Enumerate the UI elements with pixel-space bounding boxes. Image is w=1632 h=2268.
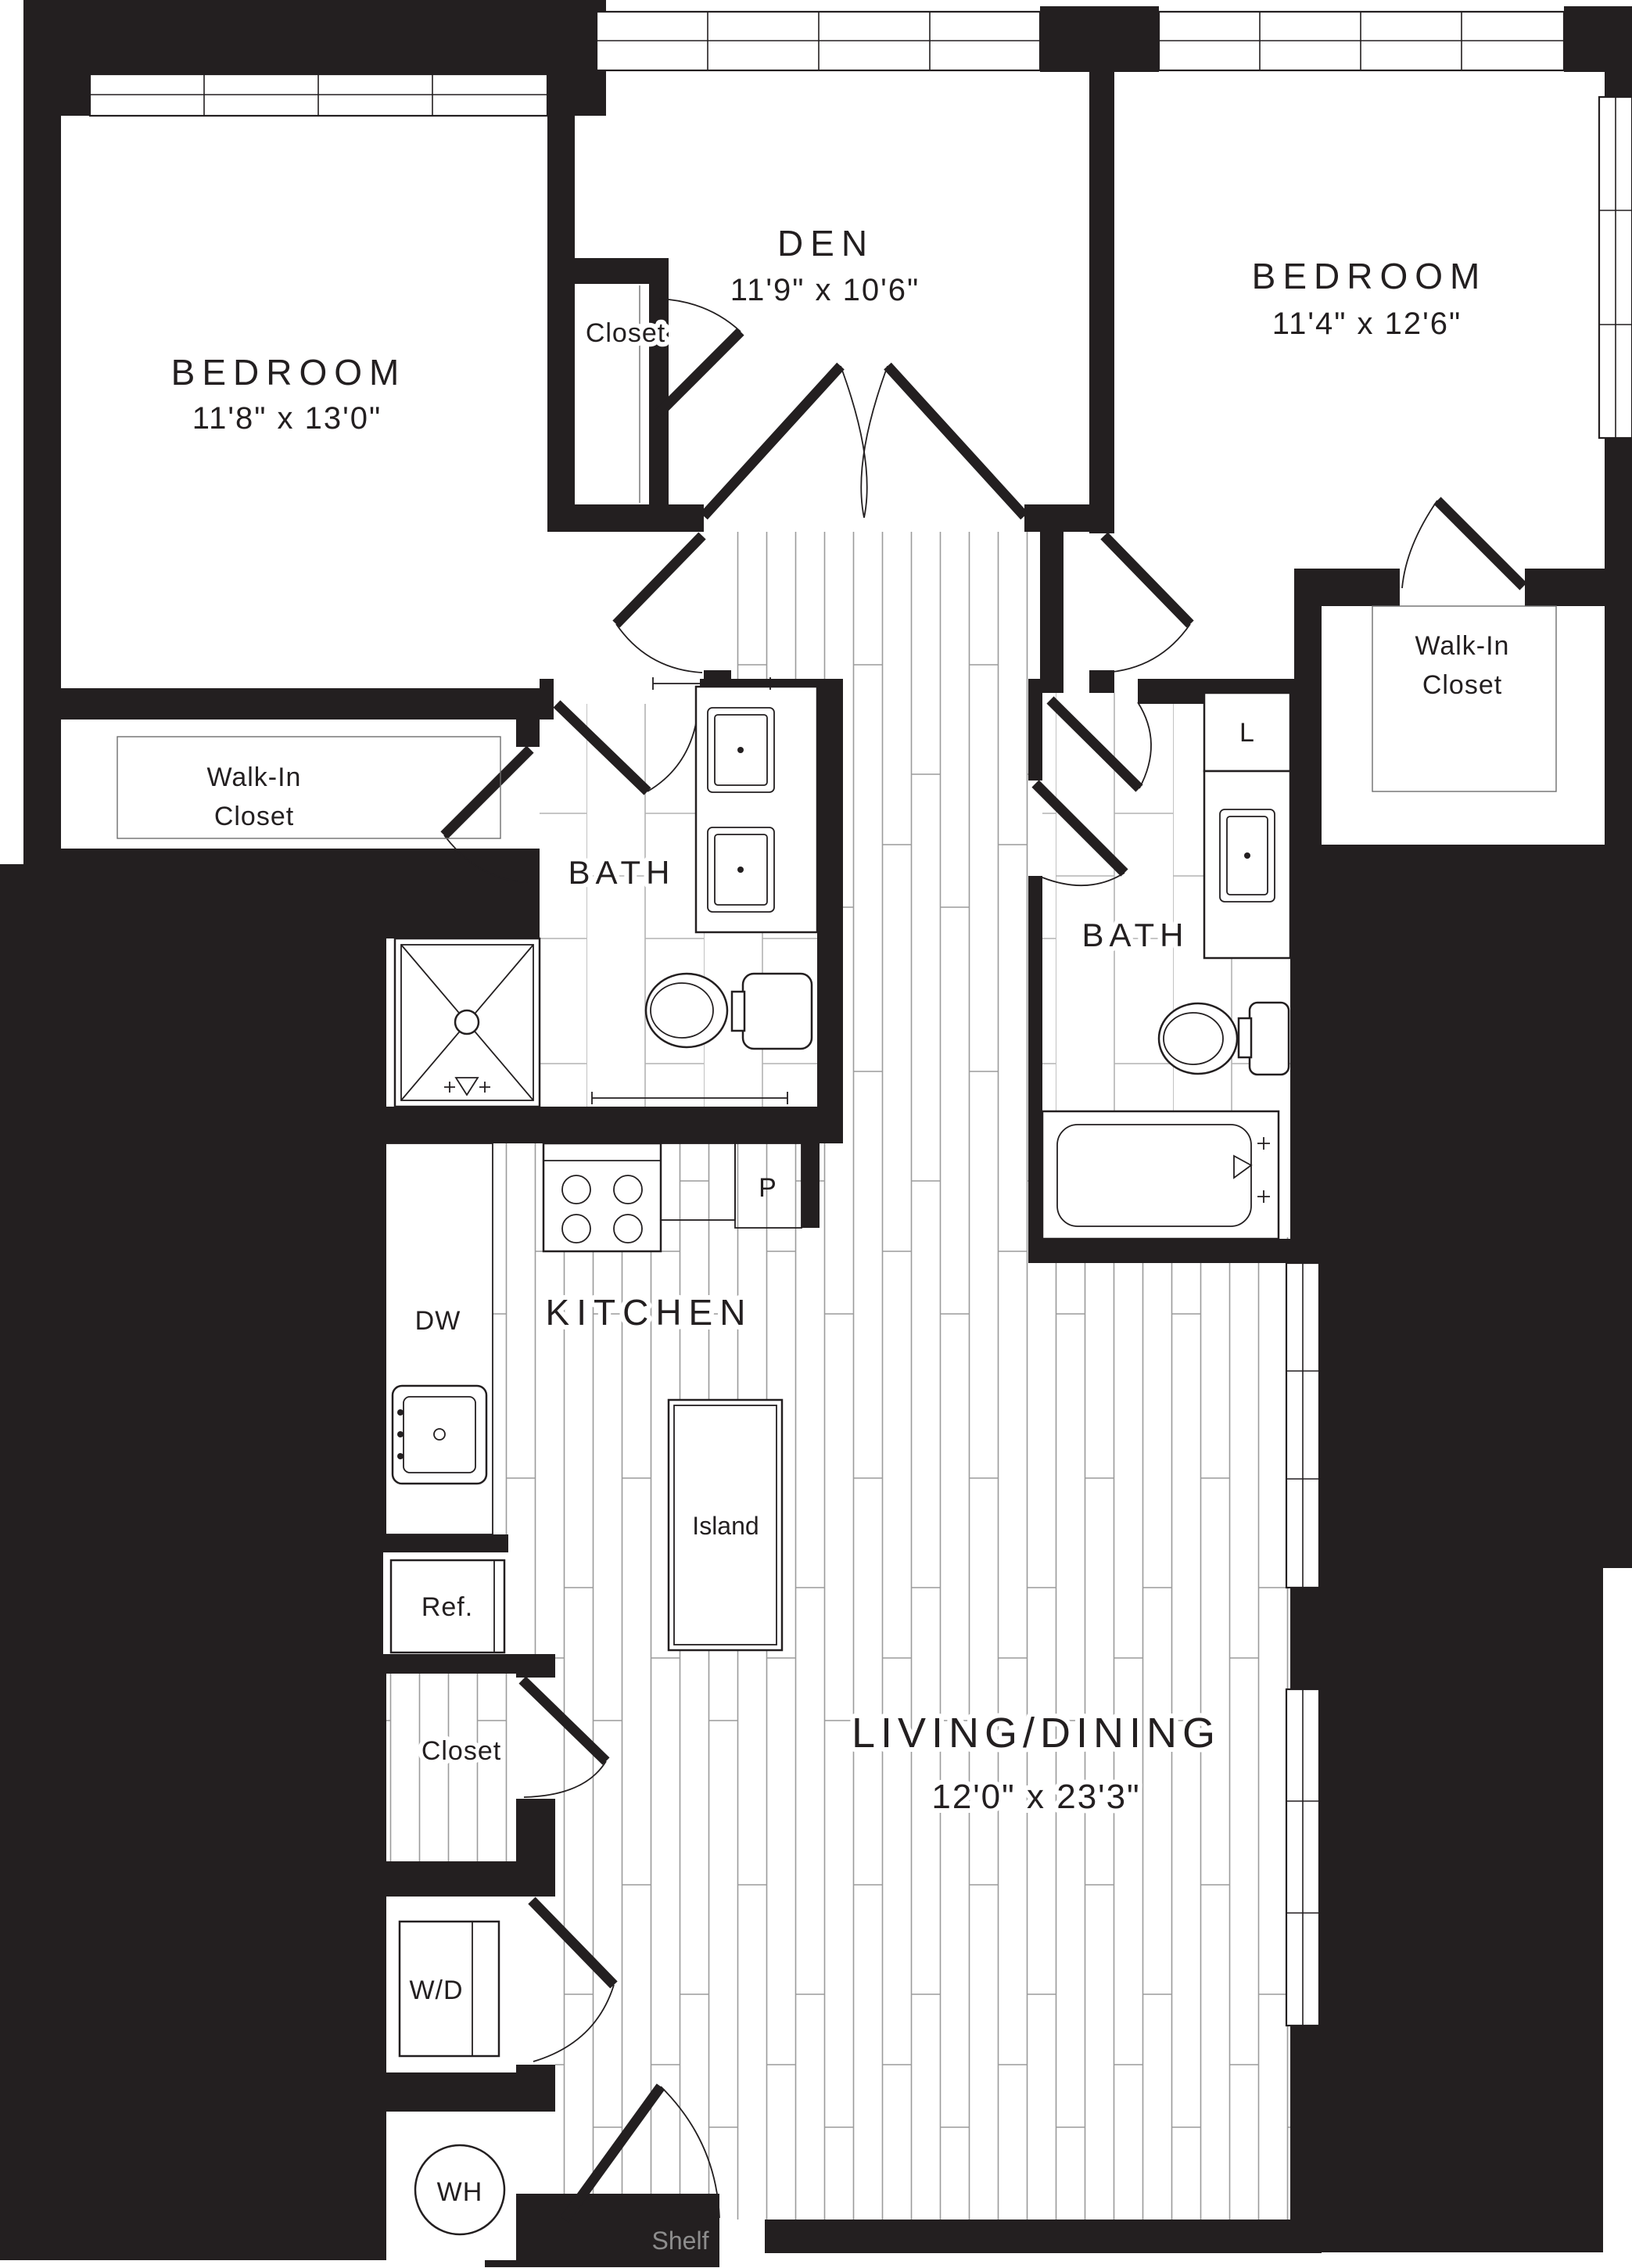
wall-walkin-right — [1605, 579, 1632, 845]
wall-den-top-left-stub — [575, 6, 597, 72]
wall-bed2-bottom-right — [1525, 569, 1632, 606]
wall-den-closet-right — [649, 258, 669, 504]
floor-plan-page: BEDROOM 11'8" x 13'0" DEN 11'9" x 10'6" … — [0, 0, 1632, 2268]
wall-wd-wh-divider — [386, 2072, 516, 2112]
bed2-door — [1104, 536, 1190, 673]
wall-top-band-bed1 — [23, 0, 606, 74]
wall-hall-vestibule — [1040, 532, 1063, 693]
shelf-label: Shelf — [652, 2227, 709, 2255]
outside-mass-right-upper — [1316, 845, 1632, 1568]
wall-bed2-door-stub — [1089, 670, 1114, 693]
den-dims: 11'9" x 10'6" — [730, 273, 920, 307]
wall-bed2-top-right-stub — [1564, 6, 1632, 72]
shower — [395, 938, 540, 1107]
kitchen-label: KITCHEN — [546, 1292, 753, 1333]
wall-bathR-bottom — [1028, 1239, 1322, 1263]
wall-bed1-bottom — [23, 688, 554, 720]
wall-den-closet-top — [575, 258, 669, 284]
wall-closetL-door-bottom-stub — [516, 849, 540, 907]
bathtub — [1042, 1111, 1279, 1239]
wall-counter-ref-divider — [383, 1534, 508, 1552]
wall-bathR-left-upper — [1028, 679, 1042, 781]
den-window — [597, 12, 1040, 70]
wh-label: WH — [437, 2177, 483, 2207]
den-label: DEN — [777, 223, 874, 264]
hall-floor-upper — [731, 532, 1040, 693]
wall-bathR-left-lower — [1028, 876, 1042, 1239]
bedroom-right-label: BEDROOM — [1252, 256, 1487, 296]
wall-kitchen-top — [383, 1107, 843, 1143]
wall-closetL-bottom — [23, 849, 516, 872]
wall-den-left — [547, 6, 575, 532]
living-window-upper — [1286, 1263, 1319, 1588]
hall-floor-mid — [843, 693, 1028, 1143]
wall-closet-wd-divider — [386, 1861, 516, 1897]
bed2-top-window — [1159, 12, 1564, 70]
wall-den-bottom-right — [1024, 504, 1089, 532]
bedroom-left-label: BEDROOM — [171, 352, 407, 393]
linen-label: L — [1239, 718, 1255, 748]
walkin-left-line1: Walk-In — [207, 763, 302, 792]
pantry-label: P — [759, 1173, 777, 1203]
wall-walkinR-bottom — [1294, 845, 1632, 864]
hall-closet-floor — [386, 1674, 516, 1861]
bath-right-label: BATH — [1082, 917, 1189, 953]
outside-mass-left — [0, 864, 386, 2260]
walkin-left-line2: Closet — [214, 802, 294, 831]
bed1-door — [616, 536, 702, 673]
bath-left-label: BATH — [569, 854, 676, 891]
den-closet-door — [659, 299, 741, 413]
den-closet-label: Closet — [586, 318, 665, 348]
walkin-right-line1: Walk-In — [1415, 631, 1510, 661]
wall-closetL-door-top-stub — [516, 720, 540, 747]
living-dining-label: LIVING/DINING — [852, 1710, 1221, 1757]
wall-closet-wd-stub — [516, 1799, 555, 1897]
island-label: Island — [692, 1512, 759, 1540]
wall-bed1-window-left-stub — [61, 74, 90, 116]
outside-mass-right-lower — [1316, 1568, 1603, 2252]
bed1-window — [90, 74, 547, 116]
wall-bathR-right — [1290, 679, 1322, 1263]
walkin-left-shelf — [117, 737, 500, 838]
bath-right-vanity — [1204, 771, 1290, 958]
wall-den-bottom-left — [547, 504, 704, 532]
stove — [543, 1143, 661, 1251]
wd-label: W/D — [409, 1976, 463, 2005]
living-dining-dims: 12'0" x 23'3" — [931, 1778, 1140, 1816]
living-window-lower — [1286, 1689, 1319, 2026]
wall-wd-wh-stub — [516, 2065, 555, 2112]
bath-right-toilet — [1159, 1003, 1289, 1075]
refrigerator-label: Ref. — [421, 1592, 473, 1622]
wall-den-top-right-stub — [1040, 6, 1091, 72]
bedroom-right-dims: 11'4" x 12'6" — [1272, 307, 1462, 341]
kitchen-sink — [393, 1386, 486, 1484]
wall-left-upper — [23, 74, 61, 720]
bedroom-left-dims: 11'8" x 13'0" — [192, 401, 382, 436]
shelf-gap — [719, 2220, 765, 2267]
den-double-doors — [704, 366, 1024, 518]
walkin-right-line2: Closet — [1422, 670, 1502, 700]
dishwasher-label: DW — [415, 1306, 461, 1336]
floor-plan: BEDROOM 11'8" x 13'0" DEN 11'9" x 10'6" … — [0, 0, 1632, 2268]
wall-bathL-right — [817, 679, 843, 1107]
wall-pantry-right — [802, 1143, 820, 1228]
walkin-right-door — [1402, 501, 1523, 588]
wall-niche-top-stub — [516, 1658, 555, 1678]
bed2-right-window — [1599, 97, 1632, 438]
wall-bathL-top-left — [540, 679, 554, 704]
wall-den-bed2-divider — [1089, 31, 1114, 533]
hall-closet-label: Closet — [421, 1736, 501, 1766]
